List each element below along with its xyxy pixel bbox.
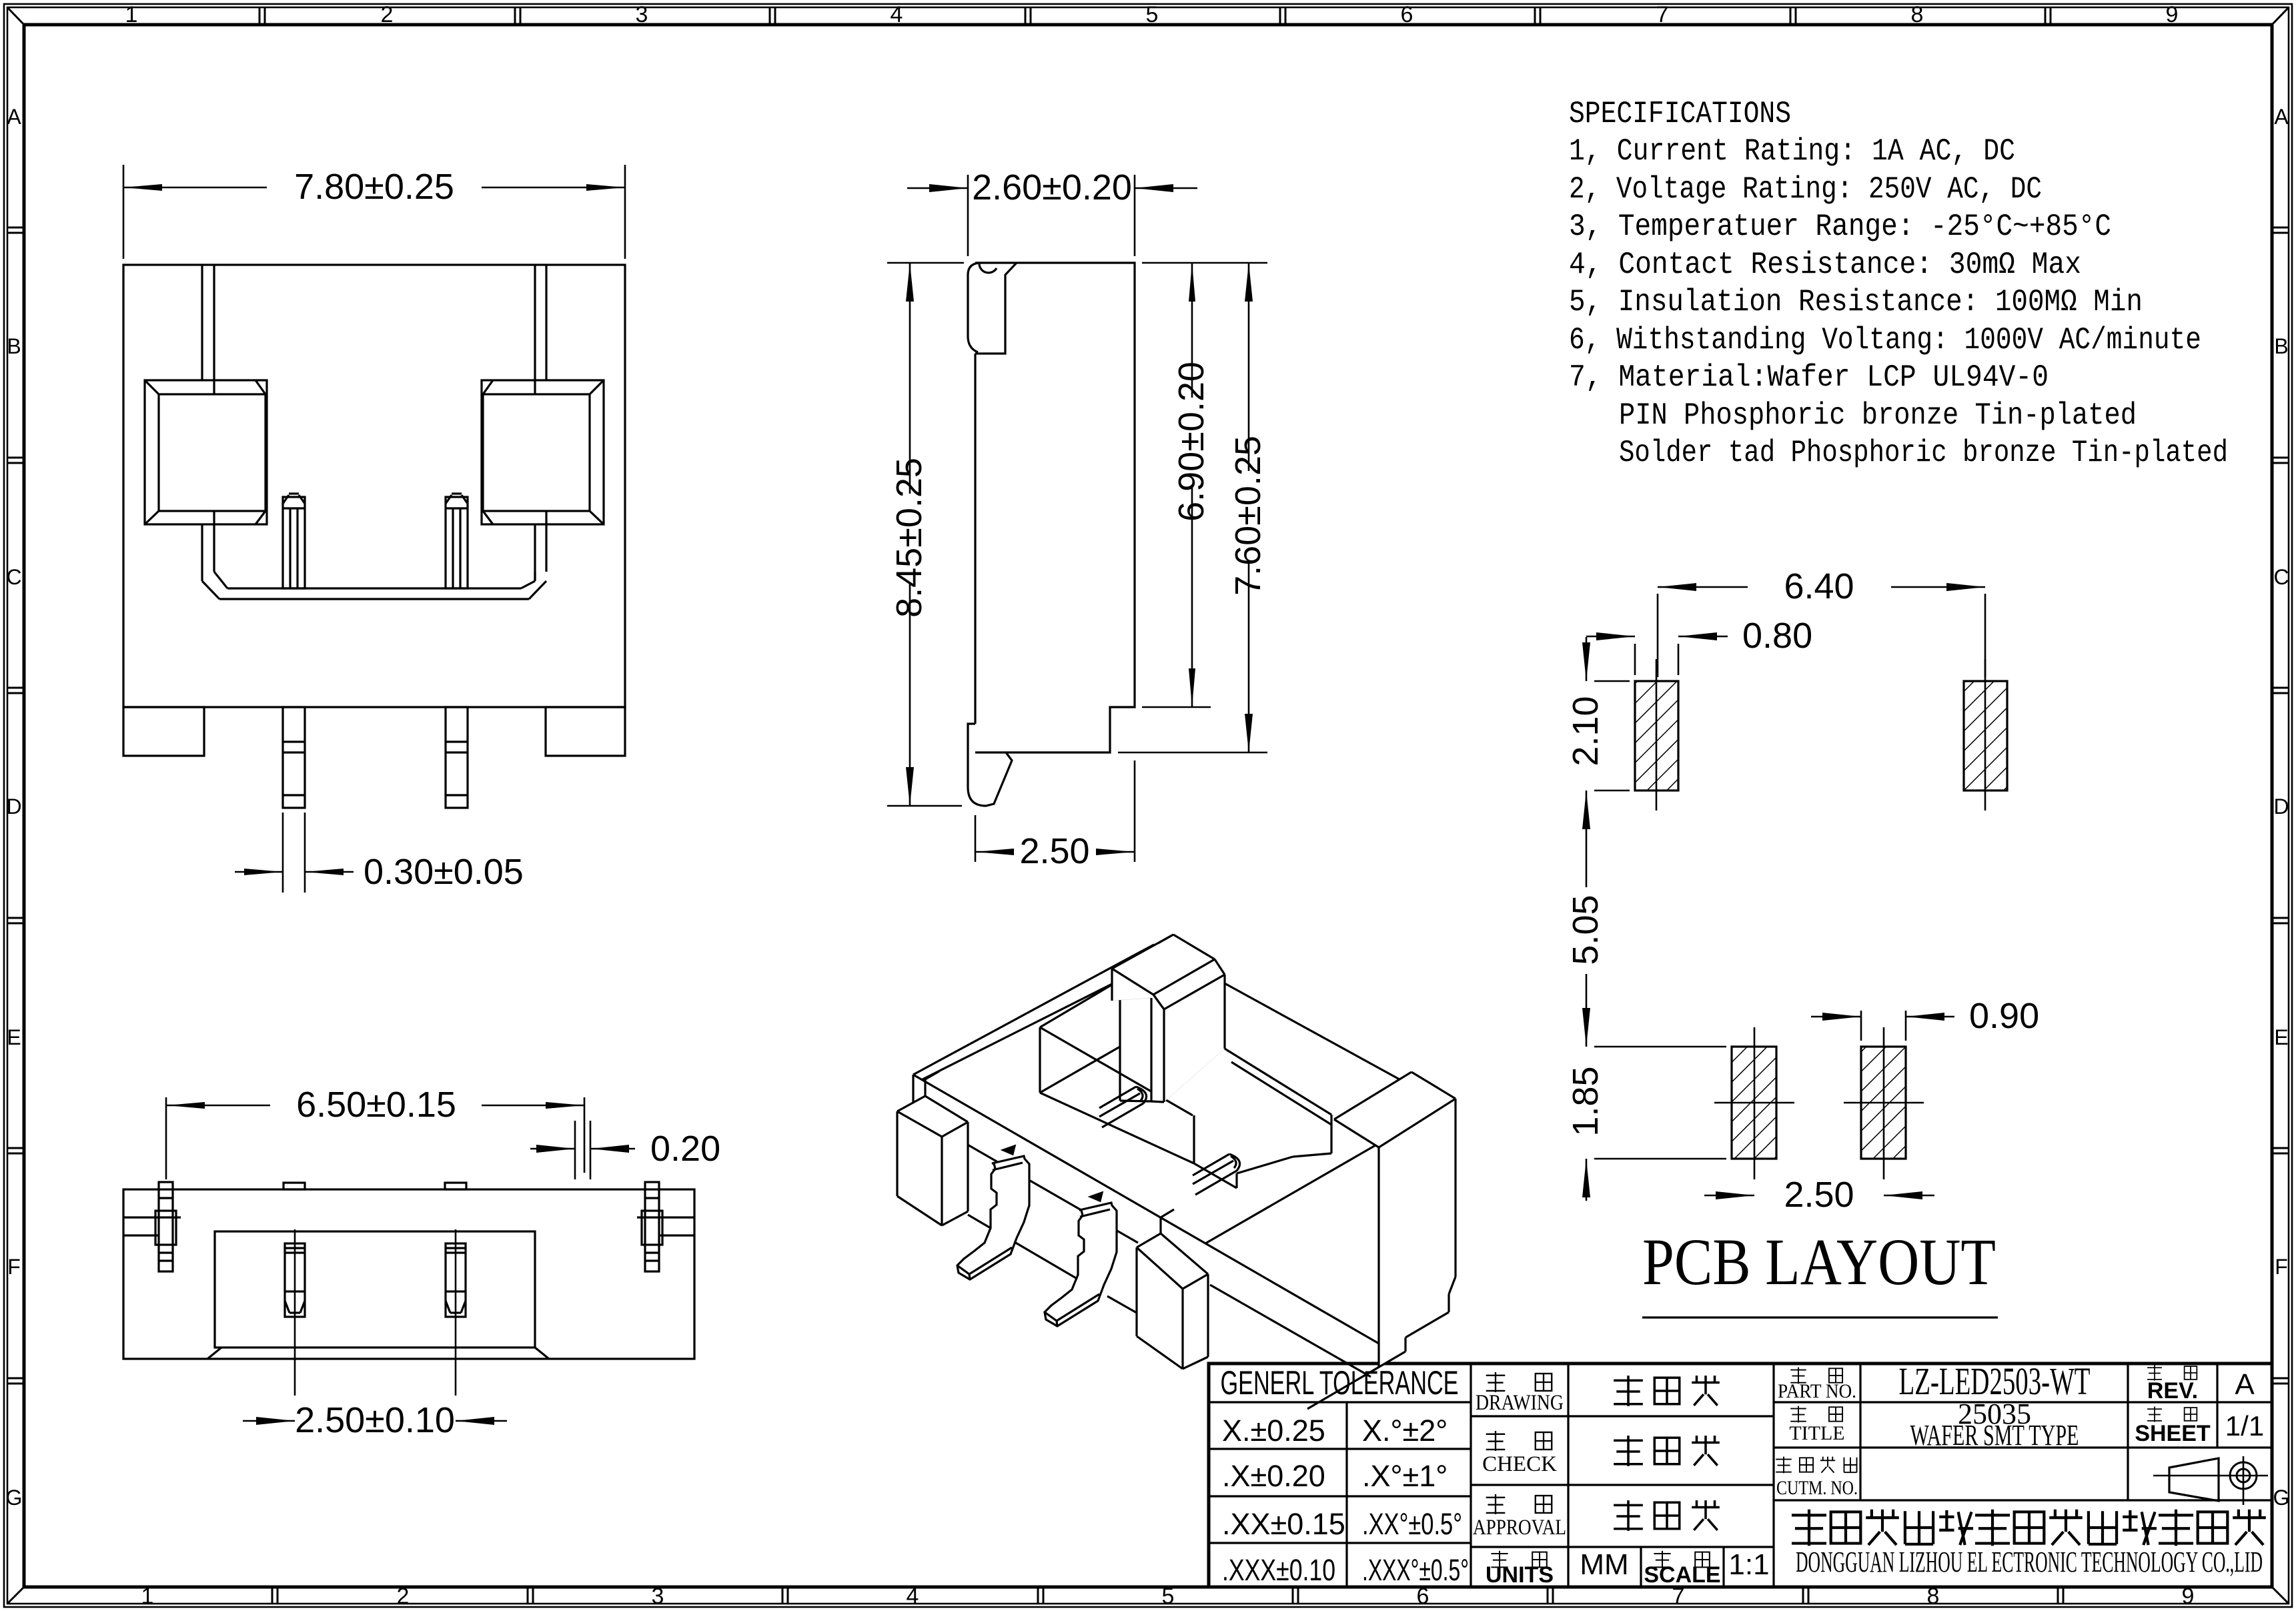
svg-text:C: C	[2273, 565, 2289, 589]
svg-text:LZ-LED2503-WT: LZ-LED2503-WT	[1899, 1360, 2091, 1403]
svg-text:6.90±0.20: 6.90±0.20	[1171, 362, 1211, 522]
svg-text:A: A	[2274, 105, 2289, 129]
svg-text:DRAWING: DRAWING	[1476, 1391, 1564, 1415]
svg-text:E: E	[7, 1025, 21, 1049]
svg-text:9: 9	[2166, 2, 2179, 27]
svg-text:2, Voltage Rating: 250V AC, DC: 2, Voltage Rating: 250V AC, DC	[1569, 172, 2042, 207]
svg-text:A: A	[7, 105, 21, 129]
svg-text:3, Temperatuer Range: -25°C~+8: 3, Temperatuer Range: -25°C~+85°C	[1569, 209, 2111, 244]
svg-text:.XXX±0.10: .XXX±0.10	[1222, 1553, 1335, 1587]
svg-text:.XXX°±0.5°: .XXX°±0.5°	[1362, 1553, 1469, 1587]
svg-text:GENERL TOLERANCE: GENERL TOLERANCE	[1221, 1364, 1459, 1402]
svg-text:8: 8	[1911, 2, 1924, 27]
svg-text:PIN Phosphoric bronze Tin-plat: PIN Phosphoric bronze Tin-plated	[1619, 398, 2137, 433]
svg-text:1: 1	[141, 1584, 154, 1609]
svg-text:4: 4	[891, 2, 903, 27]
svg-text:TITLE: TITLE	[1789, 1422, 1844, 1444]
svg-text:6.50±0.15: 6.50±0.15	[296, 1085, 456, 1125]
svg-text:SCALE: SCALE	[1644, 1562, 1720, 1588]
svg-text:PCB LAYOUT: PCB LAYOUT	[1642, 1225, 1996, 1299]
svg-text:3: 3	[636, 2, 648, 27]
svg-text:UNITS: UNITS	[1486, 1562, 1554, 1588]
svg-text:0.30±0.05: 0.30±0.05	[364, 852, 524, 892]
svg-text:7.80±0.25: 7.80±0.25	[294, 167, 454, 207]
svg-text:2.50±0.10: 2.50±0.10	[295, 1400, 455, 1440]
svg-text:7.60±0.25: 7.60±0.25	[1228, 436, 1268, 596]
svg-text:1, Current Rating: 1A AC, DC: 1, Current Rating: 1A AC, DC	[1569, 134, 2015, 169]
svg-text:2: 2	[381, 2, 394, 27]
svg-text:A: A	[2235, 1368, 2255, 1401]
svg-text:2.50: 2.50	[1784, 1175, 1854, 1215]
svg-text:B: B	[2274, 334, 2288, 358]
svg-text:8.45±0.25: 8.45±0.25	[889, 458, 929, 618]
svg-text:CHECK: CHECK	[1482, 1452, 1557, 1476]
svg-text:5: 5	[1162, 1584, 1175, 1609]
svg-text:REV.: REV.	[2147, 1378, 2198, 1404]
svg-text:Solder tad Phosphoric bronze T: Solder tad Phosphoric bronze Tin-plated	[1619, 436, 2228, 470]
svg-text:.X°±1°: .X°±1°	[1362, 1459, 1448, 1493]
svg-text:2.10: 2.10	[1566, 696, 1606, 766]
svg-text:C: C	[6, 565, 21, 589]
svg-text:.XX°±0.5°: .XX°±0.5°	[1362, 1507, 1462, 1541]
svg-text:1.85: 1.85	[1566, 1066, 1606, 1136]
svg-text:X.±0.25: X.±0.25	[1222, 1414, 1325, 1448]
svg-text:2: 2	[397, 1584, 410, 1609]
svg-text:PART NO.: PART NO.	[1778, 1380, 1856, 1402]
svg-text:F: F	[2275, 1255, 2288, 1279]
svg-text:G: G	[2273, 1486, 2290, 1510]
svg-text:5: 5	[1146, 2, 1159, 27]
svg-text:X.°±2°: X.°±2°	[1362, 1414, 1448, 1448]
svg-text:.XX±0.15: .XX±0.15	[1222, 1507, 1345, 1541]
svg-text:5.05: 5.05	[1566, 895, 1606, 965]
svg-text:MM: MM	[1580, 1548, 1628, 1581]
svg-text:WAFER SMT TYPE: WAFER SMT TYPE	[1910, 1419, 2079, 1452]
svg-text:1: 1	[125, 2, 138, 27]
svg-text:0.90: 0.90	[1969, 996, 2039, 1036]
svg-text:6, Withstanding Voltang: 1000V: 6, Withstanding Voltang: 1000V AC/minute	[1569, 323, 2201, 358]
svg-text:.X±0.20: .X±0.20	[1222, 1459, 1325, 1493]
svg-text:G: G	[6, 1486, 23, 1510]
svg-text:2.60±0.20: 2.60±0.20	[972, 167, 1132, 207]
svg-text:3: 3	[652, 1584, 664, 1609]
svg-text:DONGGUAN LIZHOU EL ECTRONIC TE: DONGGUAN LIZHOU EL ECTRONIC TECHNOLOGY C…	[1796, 1546, 2263, 1578]
svg-text:7, Material:Wafer LCP UL94V-0: 7, Material:Wafer LCP UL94V-0	[1569, 360, 2049, 395]
svg-text:SPECIFICATIONS: SPECIFICATIONS	[1569, 97, 1791, 131]
svg-text:D: D	[2273, 794, 2289, 819]
svg-text:APPROVAL: APPROVAL	[1473, 1516, 1566, 1540]
svg-text:SHEET: SHEET	[2135, 1421, 2211, 1446]
svg-text:0.20: 0.20	[650, 1129, 720, 1169]
svg-text:5, Insulation Resistance: 100M: 5, Insulation Resistance: 100MΩ Min	[1569, 285, 2143, 320]
svg-text:2.50: 2.50	[1019, 831, 1089, 871]
svg-text:7: 7	[1656, 2, 1669, 27]
svg-text:0.80: 0.80	[1742, 616, 1812, 656]
svg-text:D: D	[6, 794, 21, 819]
svg-text:B: B	[7, 334, 21, 358]
svg-text:4, Contact Resistance: 30mΩ Ma: 4, Contact Resistance: 30mΩ Max	[1569, 247, 2081, 282]
svg-text:F: F	[7, 1255, 21, 1279]
svg-text:6: 6	[1401, 2, 1413, 27]
svg-text:E: E	[2274, 1025, 2288, 1049]
svg-text:6.40: 6.40	[1784, 566, 1854, 606]
svg-text:CUTM. NO.: CUTM. NO.	[1776, 1477, 1858, 1499]
svg-text:1/1: 1/1	[2225, 1410, 2264, 1442]
svg-text:4: 4	[907, 1584, 919, 1609]
svg-text:1:1: 1:1	[1728, 1548, 1769, 1581]
